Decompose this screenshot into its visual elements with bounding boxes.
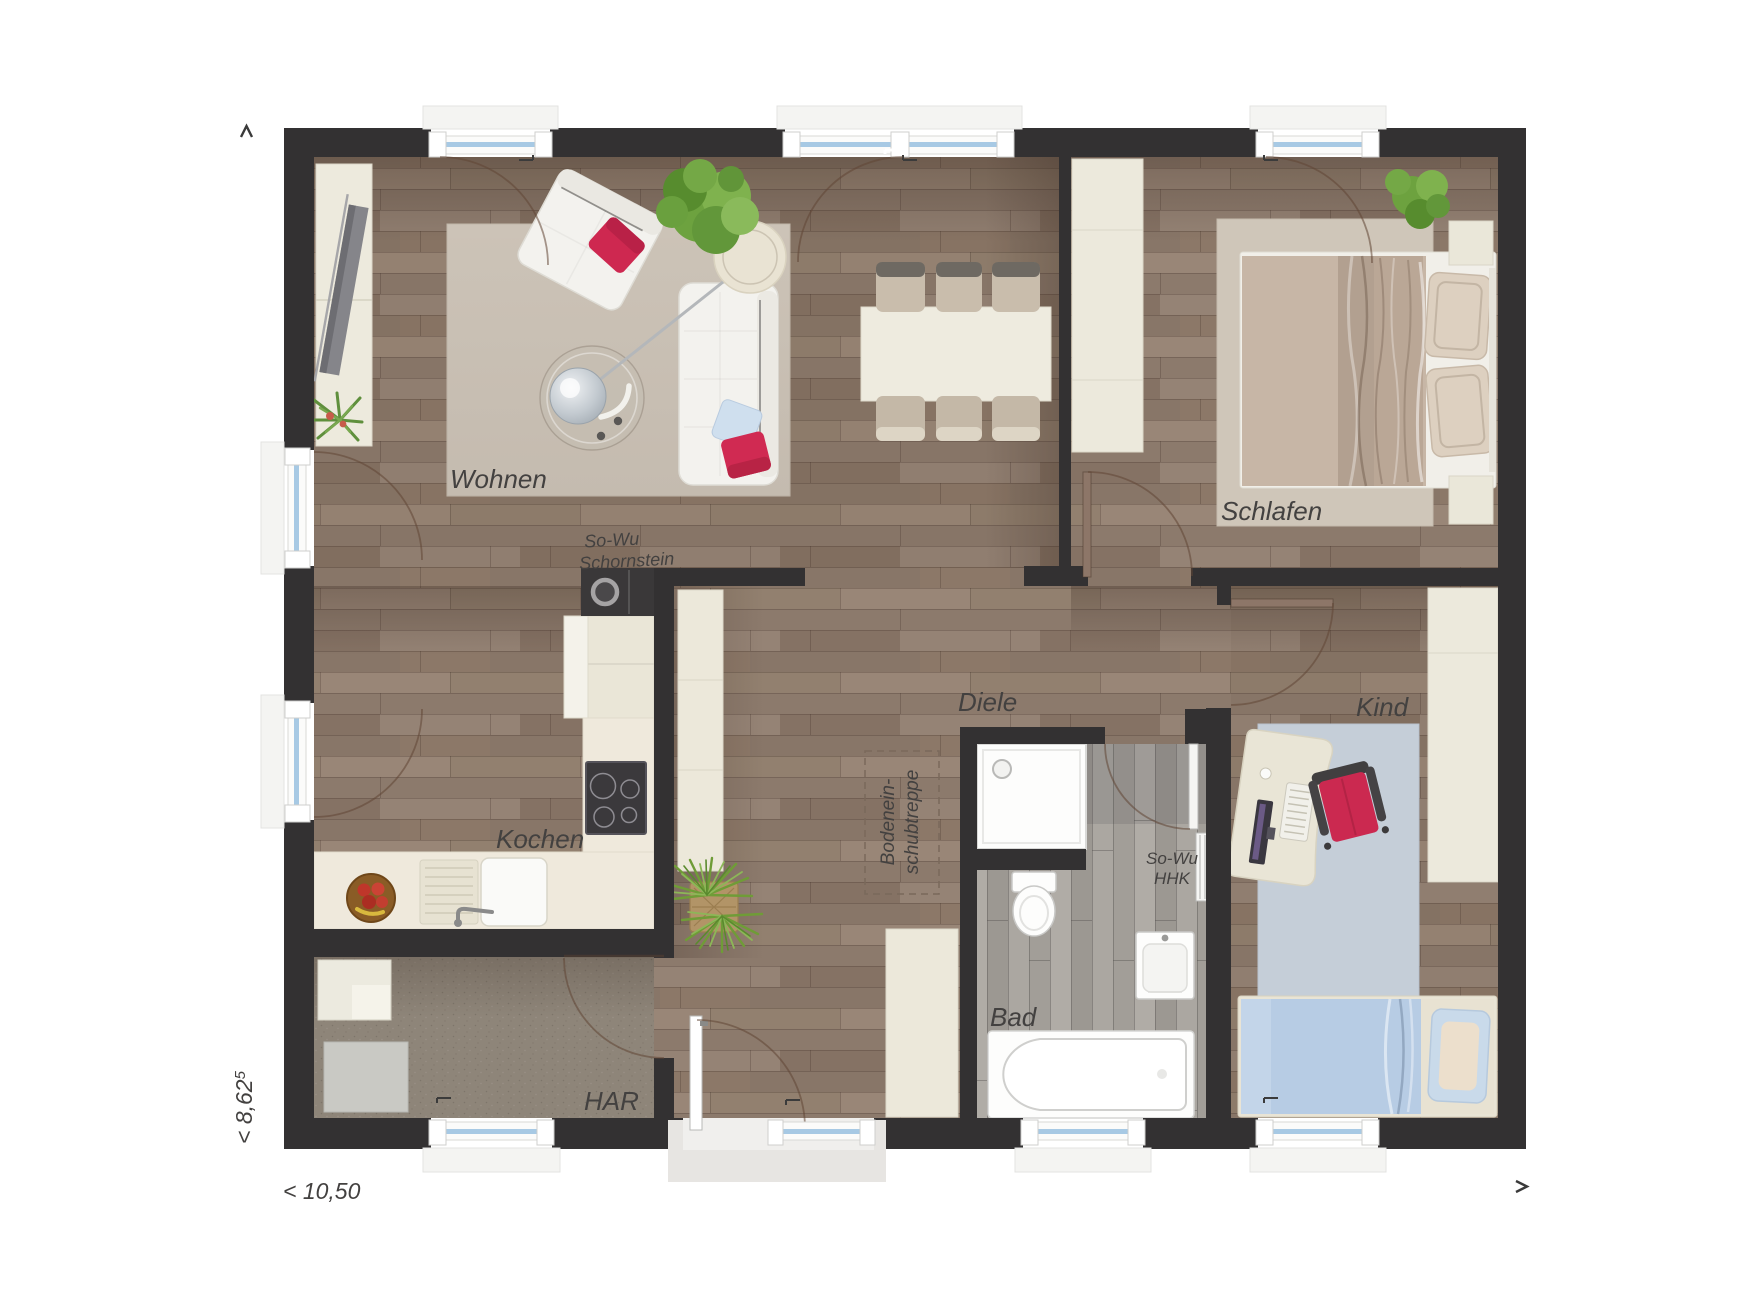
svg-text:HAR: HAR bbox=[584, 1086, 639, 1116]
svg-text:Kind: Kind bbox=[1356, 692, 1410, 722]
svg-text:HHK: HHK bbox=[1154, 869, 1191, 888]
svg-text:Schlafen: Schlafen bbox=[1221, 496, 1322, 526]
svg-text:< 8,625: < 8,625 bbox=[231, 1070, 257, 1144]
svg-text:Kochen: Kochen bbox=[496, 824, 584, 854]
svg-text:Wohnen: Wohnen bbox=[450, 464, 547, 494]
svg-text:So-Wu: So-Wu bbox=[1146, 849, 1199, 868]
svg-text:Bad: Bad bbox=[990, 1002, 1038, 1032]
svg-text:Diele: Diele bbox=[958, 687, 1017, 717]
svg-text:So-Wu: So-Wu bbox=[584, 529, 640, 552]
svg-text:Bodenein-: Bodenein- bbox=[878, 779, 899, 866]
svg-text:< 10,50: < 10,50 bbox=[283, 1178, 361, 1204]
svg-text:schubtreppe: schubtreppe bbox=[902, 770, 923, 875]
